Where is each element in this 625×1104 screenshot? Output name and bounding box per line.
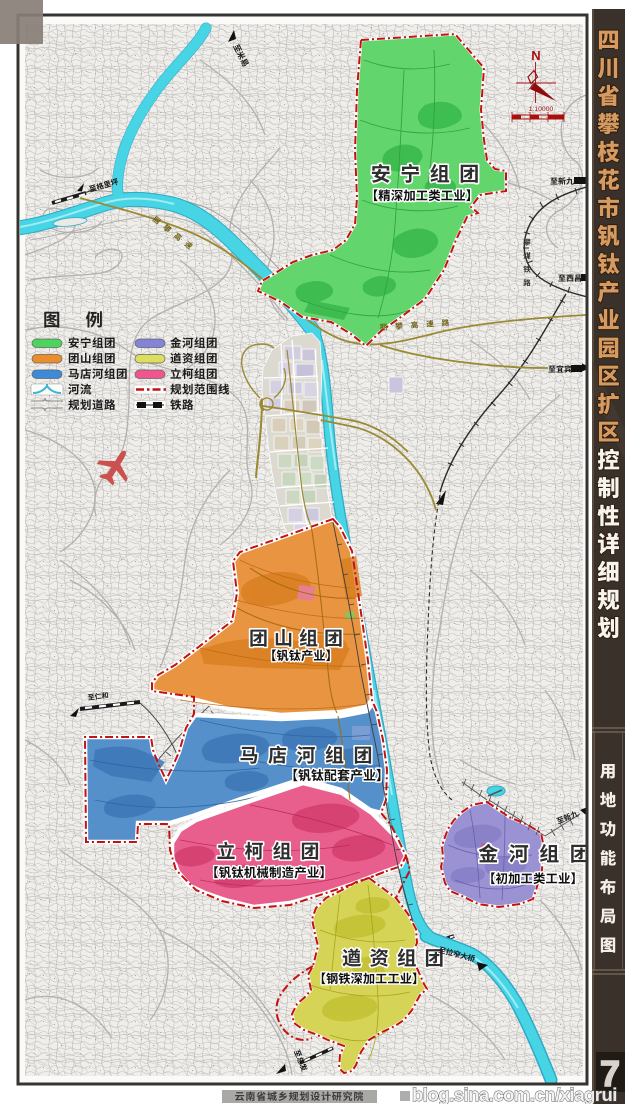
svg-text:1:10000: 1:10000 — [529, 106, 554, 113]
svg-text:N: N — [531, 48, 540, 63]
svg-text:blog.sina.com.cn/xiagrui: blog.sina.com.cn/xiagrui — [412, 1084, 617, 1104]
